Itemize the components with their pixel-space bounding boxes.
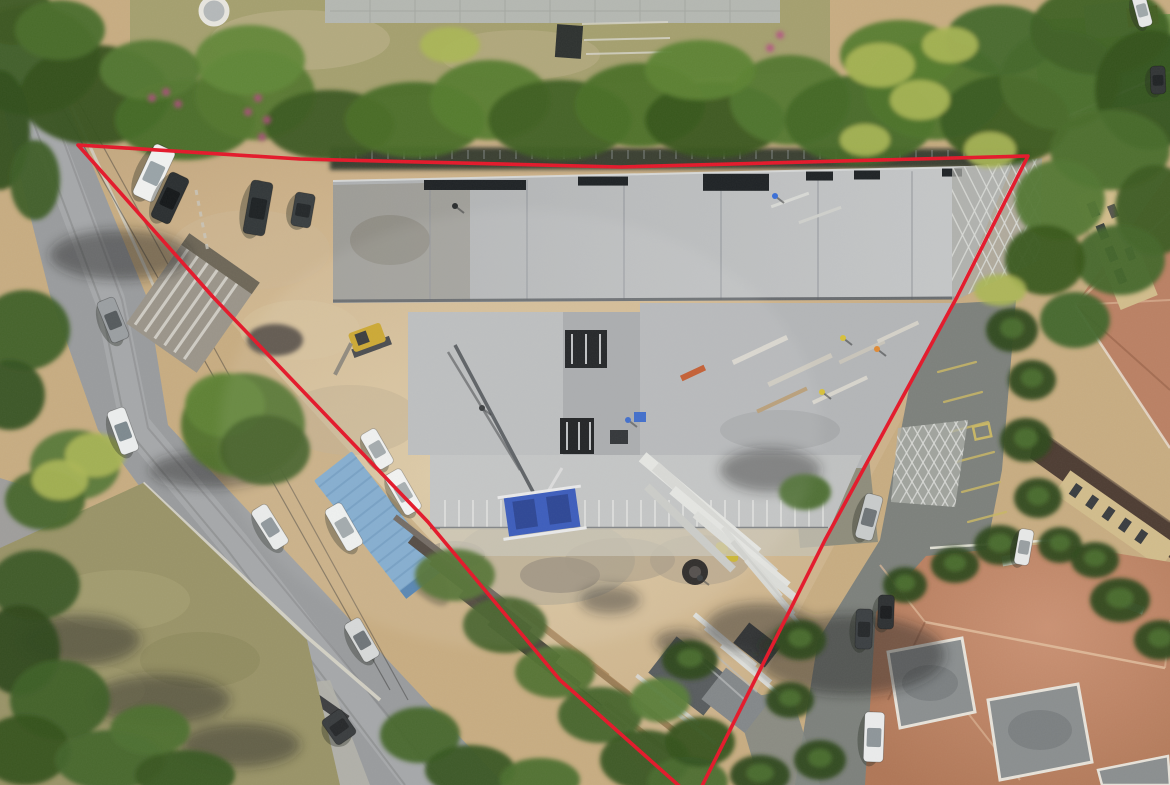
photo-grain xyxy=(0,0,1170,785)
aerial-photo-stage xyxy=(0,0,1170,785)
aerial-photo xyxy=(0,0,1170,785)
